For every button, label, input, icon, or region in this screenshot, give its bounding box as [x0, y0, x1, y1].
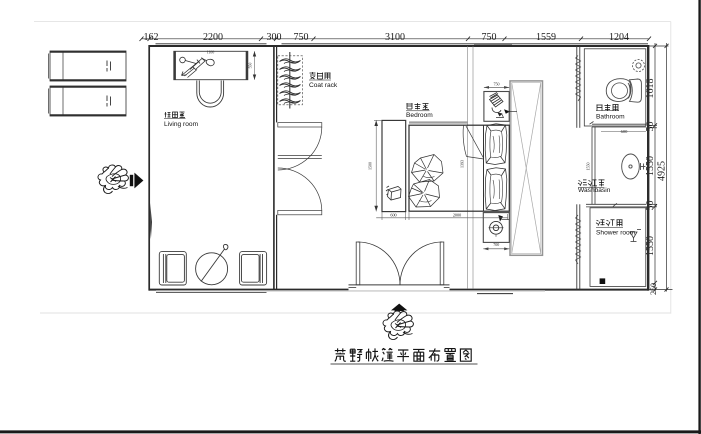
svg-text:2200: 2200: [203, 32, 223, 43]
svg-text:Bathroom: Bathroom: [596, 114, 625, 121]
svg-text:1559: 1559: [536, 32, 556, 43]
svg-text:50: 50: [645, 122, 656, 132]
svg-text:1550: 1550: [645, 236, 656, 256]
svg-text:Bedroom: Bedroom: [406, 112, 433, 119]
svg-text:Coat rack: Coat rack: [309, 82, 338, 89]
svg-text:600: 600: [390, 213, 396, 218]
svg-text:750: 750: [294, 32, 309, 43]
svg-text:3100: 3100: [385, 32, 405, 43]
svg-text:Shower room: Shower room: [596, 230, 636, 237]
svg-text:550: 550: [249, 63, 253, 69]
svg-text:250: 250: [649, 283, 658, 295]
svg-text:1100: 1100: [207, 51, 215, 55]
svg-text:600: 600: [621, 129, 629, 134]
svg-text:1550: 1550: [645, 156, 656, 176]
svg-text:Living room: Living room: [164, 121, 199, 128]
svg-text:Washbasin: Washbasin: [578, 187, 611, 194]
svg-text:1500: 1500: [368, 162, 373, 170]
svg-text:1618: 1618: [645, 79, 656, 99]
svg-text:1393: 1393: [460, 160, 465, 168]
svg-text:700: 700: [493, 242, 499, 247]
svg-text:4925: 4925: [657, 161, 668, 181]
svg-text:750: 750: [482, 32, 497, 43]
svg-text:1550: 1550: [586, 163, 591, 171]
svg-text:750: 750: [494, 82, 500, 87]
svg-text:162: 162: [144, 32, 159, 43]
svg-text:2000: 2000: [453, 213, 461, 218]
svg-text:50: 50: [645, 201, 656, 211]
svg-text:300: 300: [267, 32, 282, 43]
svg-text:1204: 1204: [609, 32, 629, 43]
